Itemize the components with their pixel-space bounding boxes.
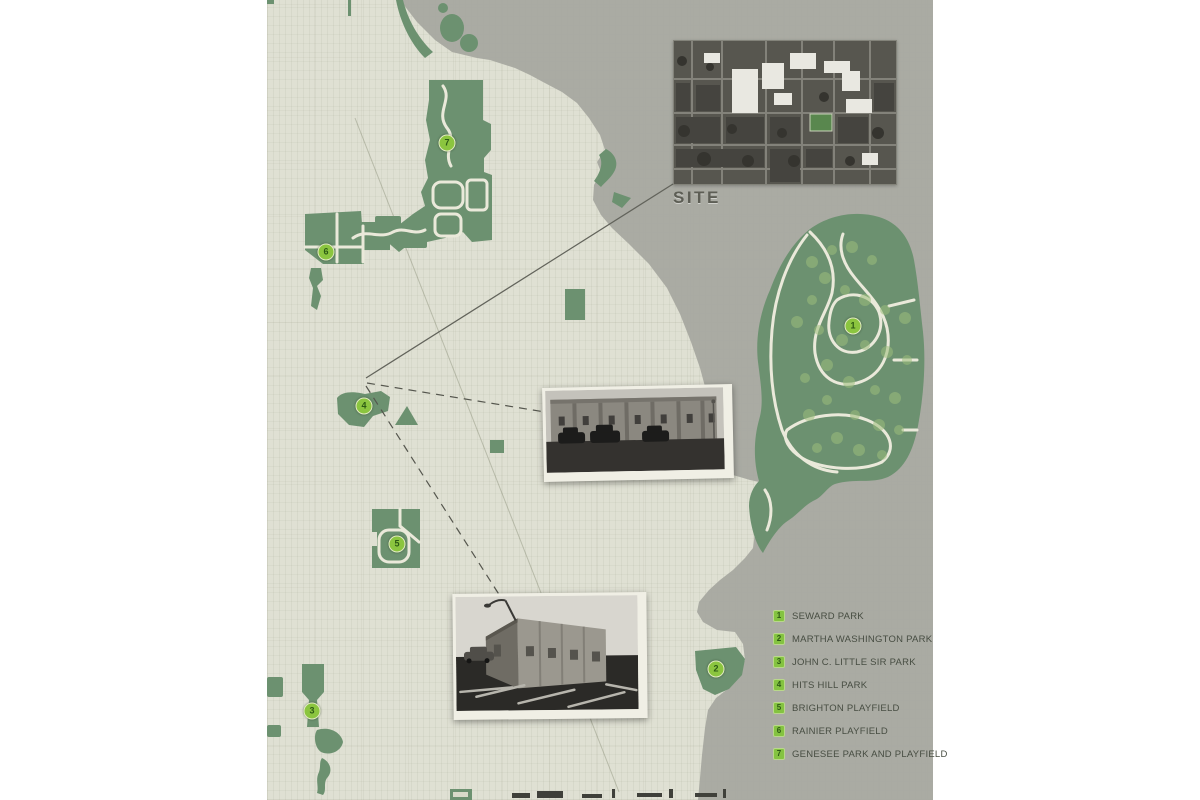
legend-number-square: 7 xyxy=(773,748,785,760)
legend-number-square: 2 xyxy=(773,633,785,645)
legend-number-square: 1 xyxy=(773,610,785,622)
map-marker-rainier-playfield: 6 xyxy=(318,244,335,261)
legend-number-square: 5 xyxy=(773,702,785,714)
map-marker-brighton-playfield: 5 xyxy=(389,536,406,553)
legend-label: SEWARD PARK xyxy=(792,611,864,622)
bottom-edge-marks xyxy=(512,789,726,798)
genesee-park-shape xyxy=(413,80,492,242)
site-photo-2-image xyxy=(455,595,638,711)
map-marker-genesee-park-and-playfield: 7 xyxy=(439,135,456,152)
parks-site-analysis-map: SITE 1SEWARD PARK2MARTHA WASHINGTON PARK… xyxy=(267,0,933,800)
site-label: SITE xyxy=(673,188,721,208)
site-photo-2 xyxy=(452,592,647,720)
legend-label: MARTHA WASHINGTON PARK xyxy=(792,634,932,645)
map-marker-martha-washington-park: 2 xyxy=(708,661,725,678)
legend-item-6: 6RAINIER PLAYFIELD xyxy=(773,725,948,737)
site-aerial-image xyxy=(674,41,896,184)
legend-label: JOHN C. LITTLE SIR PARK xyxy=(792,657,916,668)
map-marker-hits-hill-park: 4 xyxy=(356,398,373,415)
legend-item-5: 5BRIGHTON PLAYFIELD xyxy=(773,702,948,714)
site-photo-1 xyxy=(542,384,734,482)
map-marker-seward-park: 1 xyxy=(845,318,862,335)
legend-item-3: 3JOHN C. LITTLE SIR PARK xyxy=(773,656,948,668)
legend-item-4: 4HITS HILL PARK xyxy=(773,679,948,691)
legend-label: GENESEE PARK AND PLAYFIELD xyxy=(792,749,948,760)
legend-label: HITS HILL PARK xyxy=(792,680,867,691)
legend-item-1: 1SEWARD PARK xyxy=(773,610,948,622)
legend-item-2: 2MARTHA WASHINGTON PARK xyxy=(773,633,948,645)
park-legend: 1SEWARD PARK2MARTHA WASHINGTON PARK3JOHN… xyxy=(773,610,948,760)
legend-number-square: 4 xyxy=(773,679,785,691)
legend-number-square: 3 xyxy=(773,656,785,668)
legend-number-square: 6 xyxy=(773,725,785,737)
map-canvas: SITE 1SEWARD PARK2MARTHA WASHINGTON PARK… xyxy=(0,0,1200,800)
legend-item-7: 7GENESEE PARK AND PLAYFIELD xyxy=(773,748,948,760)
map-marker-john-c-little-sir-park: 3 xyxy=(304,703,321,720)
site-photo-1-image xyxy=(545,387,725,473)
site-aerial-inset xyxy=(673,40,897,185)
legend-label: RAINIER PLAYFIELD xyxy=(792,726,888,737)
legend-label: BRIGHTON PLAYFIELD xyxy=(792,703,900,714)
